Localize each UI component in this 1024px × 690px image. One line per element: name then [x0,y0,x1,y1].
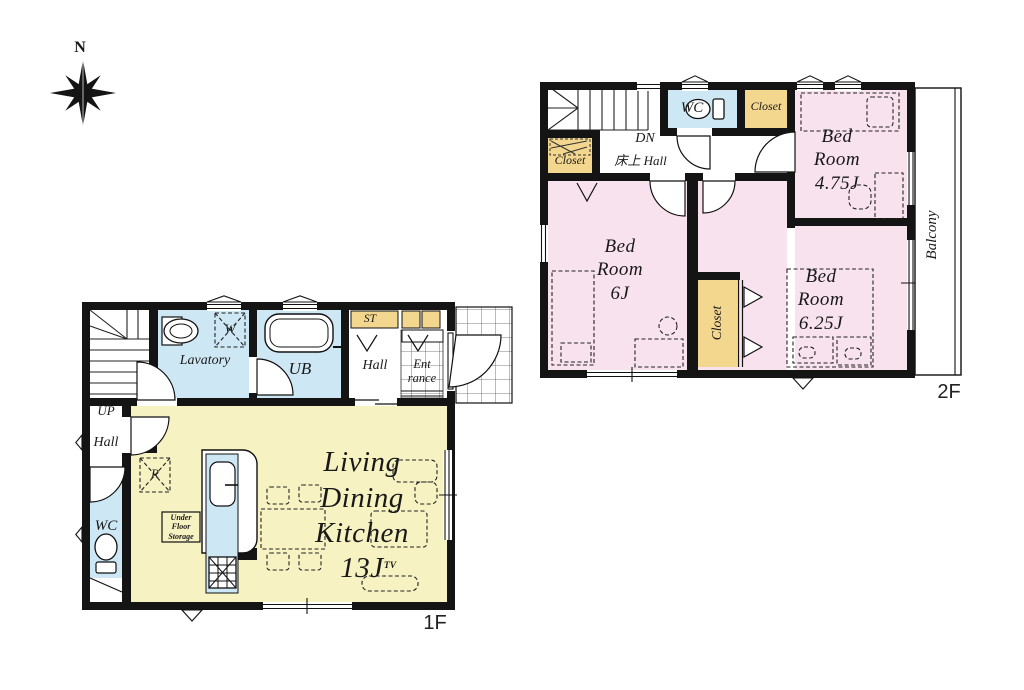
floorplan-2f: DN 床上 Hall WC Closet Closet Closet Balco… [535,75,975,405]
bedroom-475j-room [795,90,907,218]
window-1f-lavatory [207,302,241,311]
floorplan-1f: Lavatory W UB ST Hall Ent rance UP Hall … [75,295,520,635]
st-cell-2 [402,311,420,328]
ldk-room [131,406,447,602]
window-2f-bed475-b [835,82,861,91]
window-2f-bed6-left [539,225,548,262]
window-1f-ub [283,302,317,311]
toilet-2f-icon [686,99,724,119]
toilet-1f-icon [95,534,117,560]
compass-rose-icon [48,58,126,132]
compass-north-label: N [60,38,100,58]
window-2f-stairs [637,82,660,91]
st-cell-3 [422,311,440,328]
balcony-2f [915,88,961,375]
kitchen-sink-icon [210,462,235,506]
toilet-1f-tank [96,562,116,573]
stove-icon [209,557,236,588]
closet-top-room [745,90,787,128]
compass: N [46,38,134,134]
closet-mid-room [698,280,737,367]
floorplan-2f-drawing [535,75,975,405]
st-closet [351,311,398,328]
sink-lavatory-icon [164,319,198,343]
window-2f-bed475-a [797,82,823,91]
floorplan-canvas: N [0,0,1024,690]
entrance-porch [449,307,512,403]
floorplan-1f-drawing [75,295,520,635]
window-2f-wc [682,82,708,91]
